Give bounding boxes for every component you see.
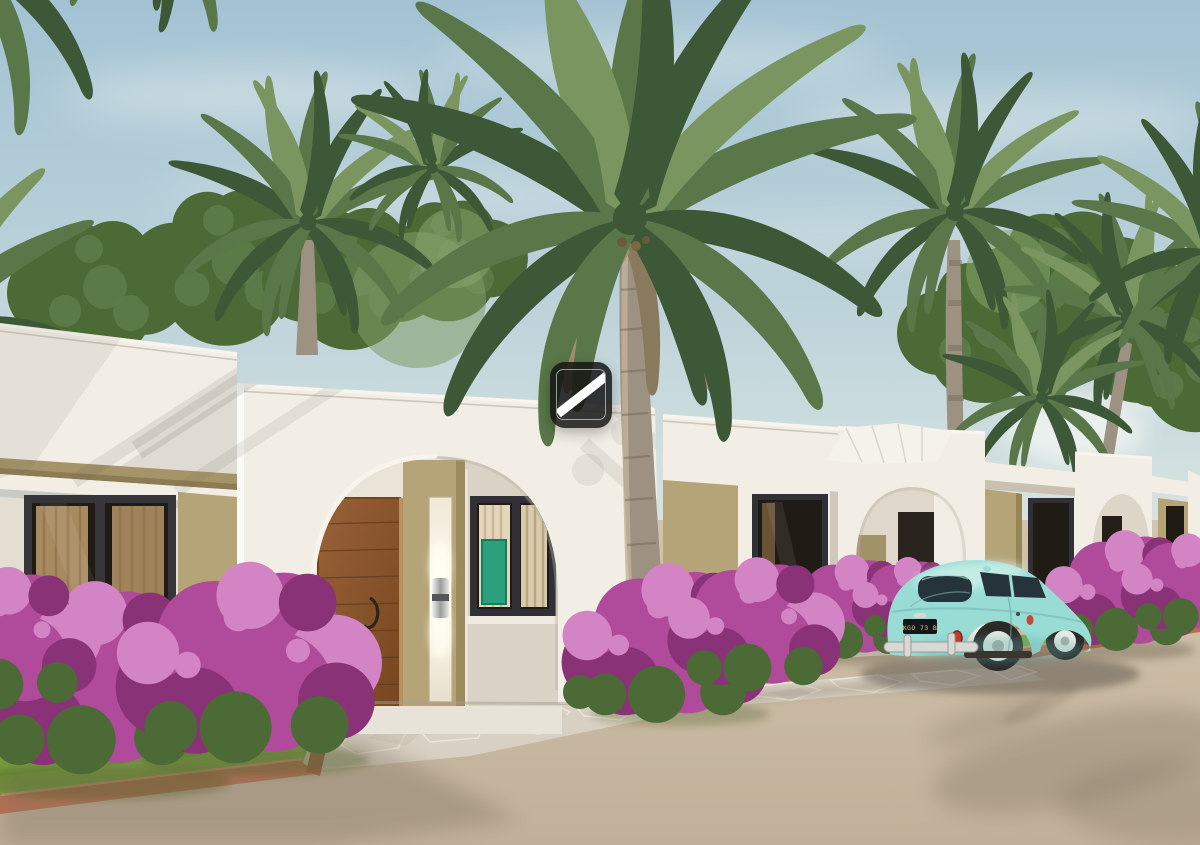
side-mirror [983, 566, 991, 572]
bumper-overrider [904, 635, 911, 657]
plate-light [914, 613, 926, 618]
green-artwork [482, 540, 506, 604]
diagonal-slash-icon [556, 370, 606, 418]
window-sill [466, 616, 560, 624]
rear-bumper [884, 642, 978, 652]
bumper-overrider [948, 633, 955, 655]
tail-light-right [1027, 615, 1034, 625]
watermark-logo [550, 362, 612, 428]
license-plate-text: KGO 73 B [903, 624, 938, 632]
rendered-scene: KGO 73 B [0, 0, 1200, 845]
watermark-border [556, 369, 606, 420]
lamp-pillar [403, 460, 465, 714]
door-handle [1016, 612, 1020, 616]
